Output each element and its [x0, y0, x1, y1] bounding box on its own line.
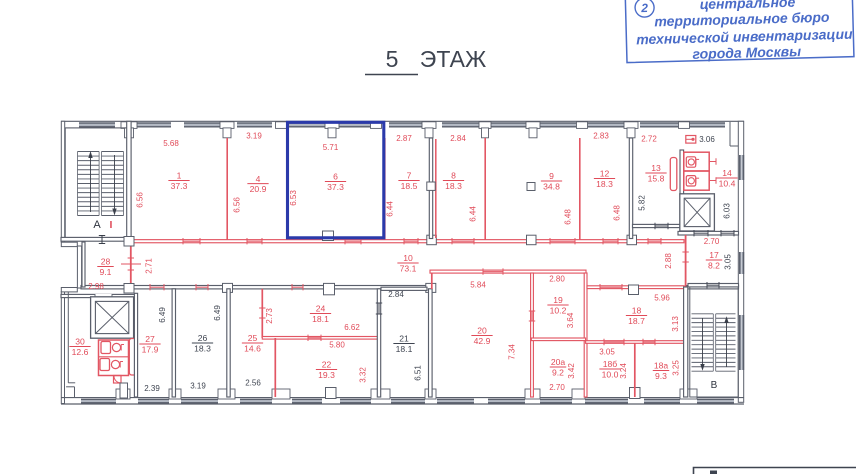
svg-text:37.3: 37.3	[327, 182, 344, 192]
svg-text:3.24: 3.24	[619, 363, 628, 379]
svg-text:2.73: 2.73	[265, 308, 274, 324]
svg-text:3.13: 3.13	[671, 316, 680, 332]
svg-text:21: 21	[399, 334, 409, 344]
svg-text:9: 9	[549, 171, 554, 181]
svg-text:6.49: 6.49	[158, 307, 167, 323]
svg-text:12.6: 12.6	[72, 347, 89, 357]
svg-text:2.80: 2.80	[549, 275, 565, 284]
svg-text:А: А	[93, 219, 101, 231]
svg-text:18б: 18б	[603, 359, 618, 369]
svg-text:9.2: 9.2	[552, 367, 564, 377]
svg-text:6.48: 6.48	[564, 209, 573, 225]
svg-text:6.03: 6.03	[723, 203, 732, 219]
svg-text:4: 4	[256, 174, 261, 184]
svg-text:города Москвы: города Москвы	[692, 43, 801, 62]
svg-text:3.42: 3.42	[567, 363, 576, 379]
svg-text:2.56: 2.56	[245, 379, 261, 388]
svg-text:22: 22	[322, 360, 332, 370]
svg-text:26: 26	[198, 333, 208, 343]
svg-text:6.44: 6.44	[386, 201, 395, 217]
svg-text:В: В	[711, 380, 718, 391]
svg-text:7: 7	[407, 171, 412, 181]
svg-text:5.80: 5.80	[329, 341, 345, 350]
svg-text:2.88: 2.88	[664, 253, 673, 269]
svg-text:ЭТАЖ: ЭТАЖ	[420, 46, 486, 72]
svg-text:14: 14	[722, 168, 732, 178]
svg-text:8.2: 8.2	[708, 260, 720, 270]
svg-text:2.87: 2.87	[396, 134, 412, 143]
svg-text:3.06: 3.06	[699, 135, 715, 144]
svg-text:13: 13	[651, 163, 661, 173]
svg-text:24: 24	[316, 304, 326, 314]
svg-text:5.84: 5.84	[470, 281, 486, 290]
svg-text:8: 8	[451, 171, 456, 181]
svg-text:9.3: 9.3	[655, 371, 667, 381]
svg-text:2: 2	[640, 1, 648, 15]
svg-text:19: 19	[553, 295, 563, 305]
svg-text:1: 1	[177, 171, 182, 181]
svg-text:14.6: 14.6	[244, 343, 261, 353]
svg-text:18.3: 18.3	[445, 181, 462, 191]
svg-text:2.83: 2.83	[593, 132, 609, 141]
svg-text:10.2: 10.2	[550, 305, 567, 315]
svg-text:42.9: 42.9	[474, 336, 491, 346]
svg-text:27: 27	[145, 334, 155, 344]
svg-text:20а: 20а	[551, 357, 566, 367]
svg-text:18.3: 18.3	[596, 179, 613, 189]
svg-text:3.32: 3.32	[359, 367, 368, 383]
svg-text:17.9: 17.9	[142, 344, 159, 354]
svg-text:2.39: 2.39	[144, 384, 160, 393]
svg-text:I: I	[110, 219, 113, 231]
svg-text:3.19: 3.19	[246, 132, 262, 141]
svg-text:5.71: 5.71	[323, 143, 339, 152]
svg-text:18.5: 18.5	[401, 181, 418, 191]
svg-text:7.34: 7.34	[508, 344, 517, 360]
svg-text:6.49: 6.49	[213, 305, 222, 321]
svg-text:19.3: 19.3	[318, 370, 335, 380]
svg-text:30: 30	[75, 337, 85, 347]
svg-text:10.0: 10.0	[602, 369, 619, 379]
svg-text:2.71: 2.71	[145, 258, 154, 274]
svg-text:18: 18	[632, 306, 642, 316]
svg-text:18.1: 18.1	[312, 314, 329, 324]
svg-text:6.48: 6.48	[613, 205, 622, 221]
svg-text:10: 10	[403, 253, 413, 263]
svg-text:34.8: 34.8	[543, 181, 560, 191]
svg-text:25: 25	[248, 333, 258, 343]
svg-text:15.8: 15.8	[648, 173, 665, 183]
svg-text:18.1: 18.1	[396, 344, 413, 354]
svg-text:18а: 18а	[654, 361, 669, 371]
svg-text:3.05: 3.05	[724, 254, 733, 270]
svg-text:3.25: 3.25	[672, 360, 681, 376]
svg-text:5.96: 5.96	[654, 294, 670, 303]
svg-text:6.44: 6.44	[469, 206, 478, 222]
svg-text:20.9: 20.9	[250, 184, 267, 194]
svg-text:6.62: 6.62	[344, 323, 360, 332]
svg-text:6.56: 6.56	[233, 197, 242, 213]
svg-text:3.64: 3.64	[566, 312, 575, 328]
svg-text:73.1: 73.1	[400, 263, 417, 273]
svg-text:5.82: 5.82	[638, 195, 647, 211]
svg-text:2.70: 2.70	[704, 237, 720, 246]
svg-text:18.3: 18.3	[194, 343, 211, 353]
svg-text:3.19: 3.19	[190, 382, 206, 391]
svg-text:17: 17	[709, 250, 719, 260]
svg-text:6: 6	[333, 172, 338, 182]
svg-text:2.84: 2.84	[388, 290, 404, 299]
svg-text:18.7: 18.7	[628, 316, 645, 326]
svg-text:37.3: 37.3	[171, 181, 188, 191]
svg-text:6.56: 6.56	[136, 192, 145, 208]
svg-text:9.1: 9.1	[100, 267, 112, 277]
svg-text:6.53: 6.53	[289, 190, 298, 206]
svg-text:2.98: 2.98	[88, 282, 104, 291]
svg-text:20: 20	[477, 326, 487, 336]
svg-text:5: 5	[386, 46, 399, 72]
svg-text:2.84: 2.84	[450, 134, 466, 143]
svg-text:3.05: 3.05	[599, 348, 615, 357]
svg-text:6.51: 6.51	[414, 365, 423, 381]
svg-text:5.68: 5.68	[163, 139, 179, 148]
svg-text:2.72: 2.72	[641, 135, 657, 144]
svg-text:2.70: 2.70	[549, 383, 565, 392]
svg-text:12: 12	[600, 169, 610, 179]
svg-text:10.4: 10.4	[719, 178, 736, 188]
svg-text:28: 28	[101, 257, 111, 267]
